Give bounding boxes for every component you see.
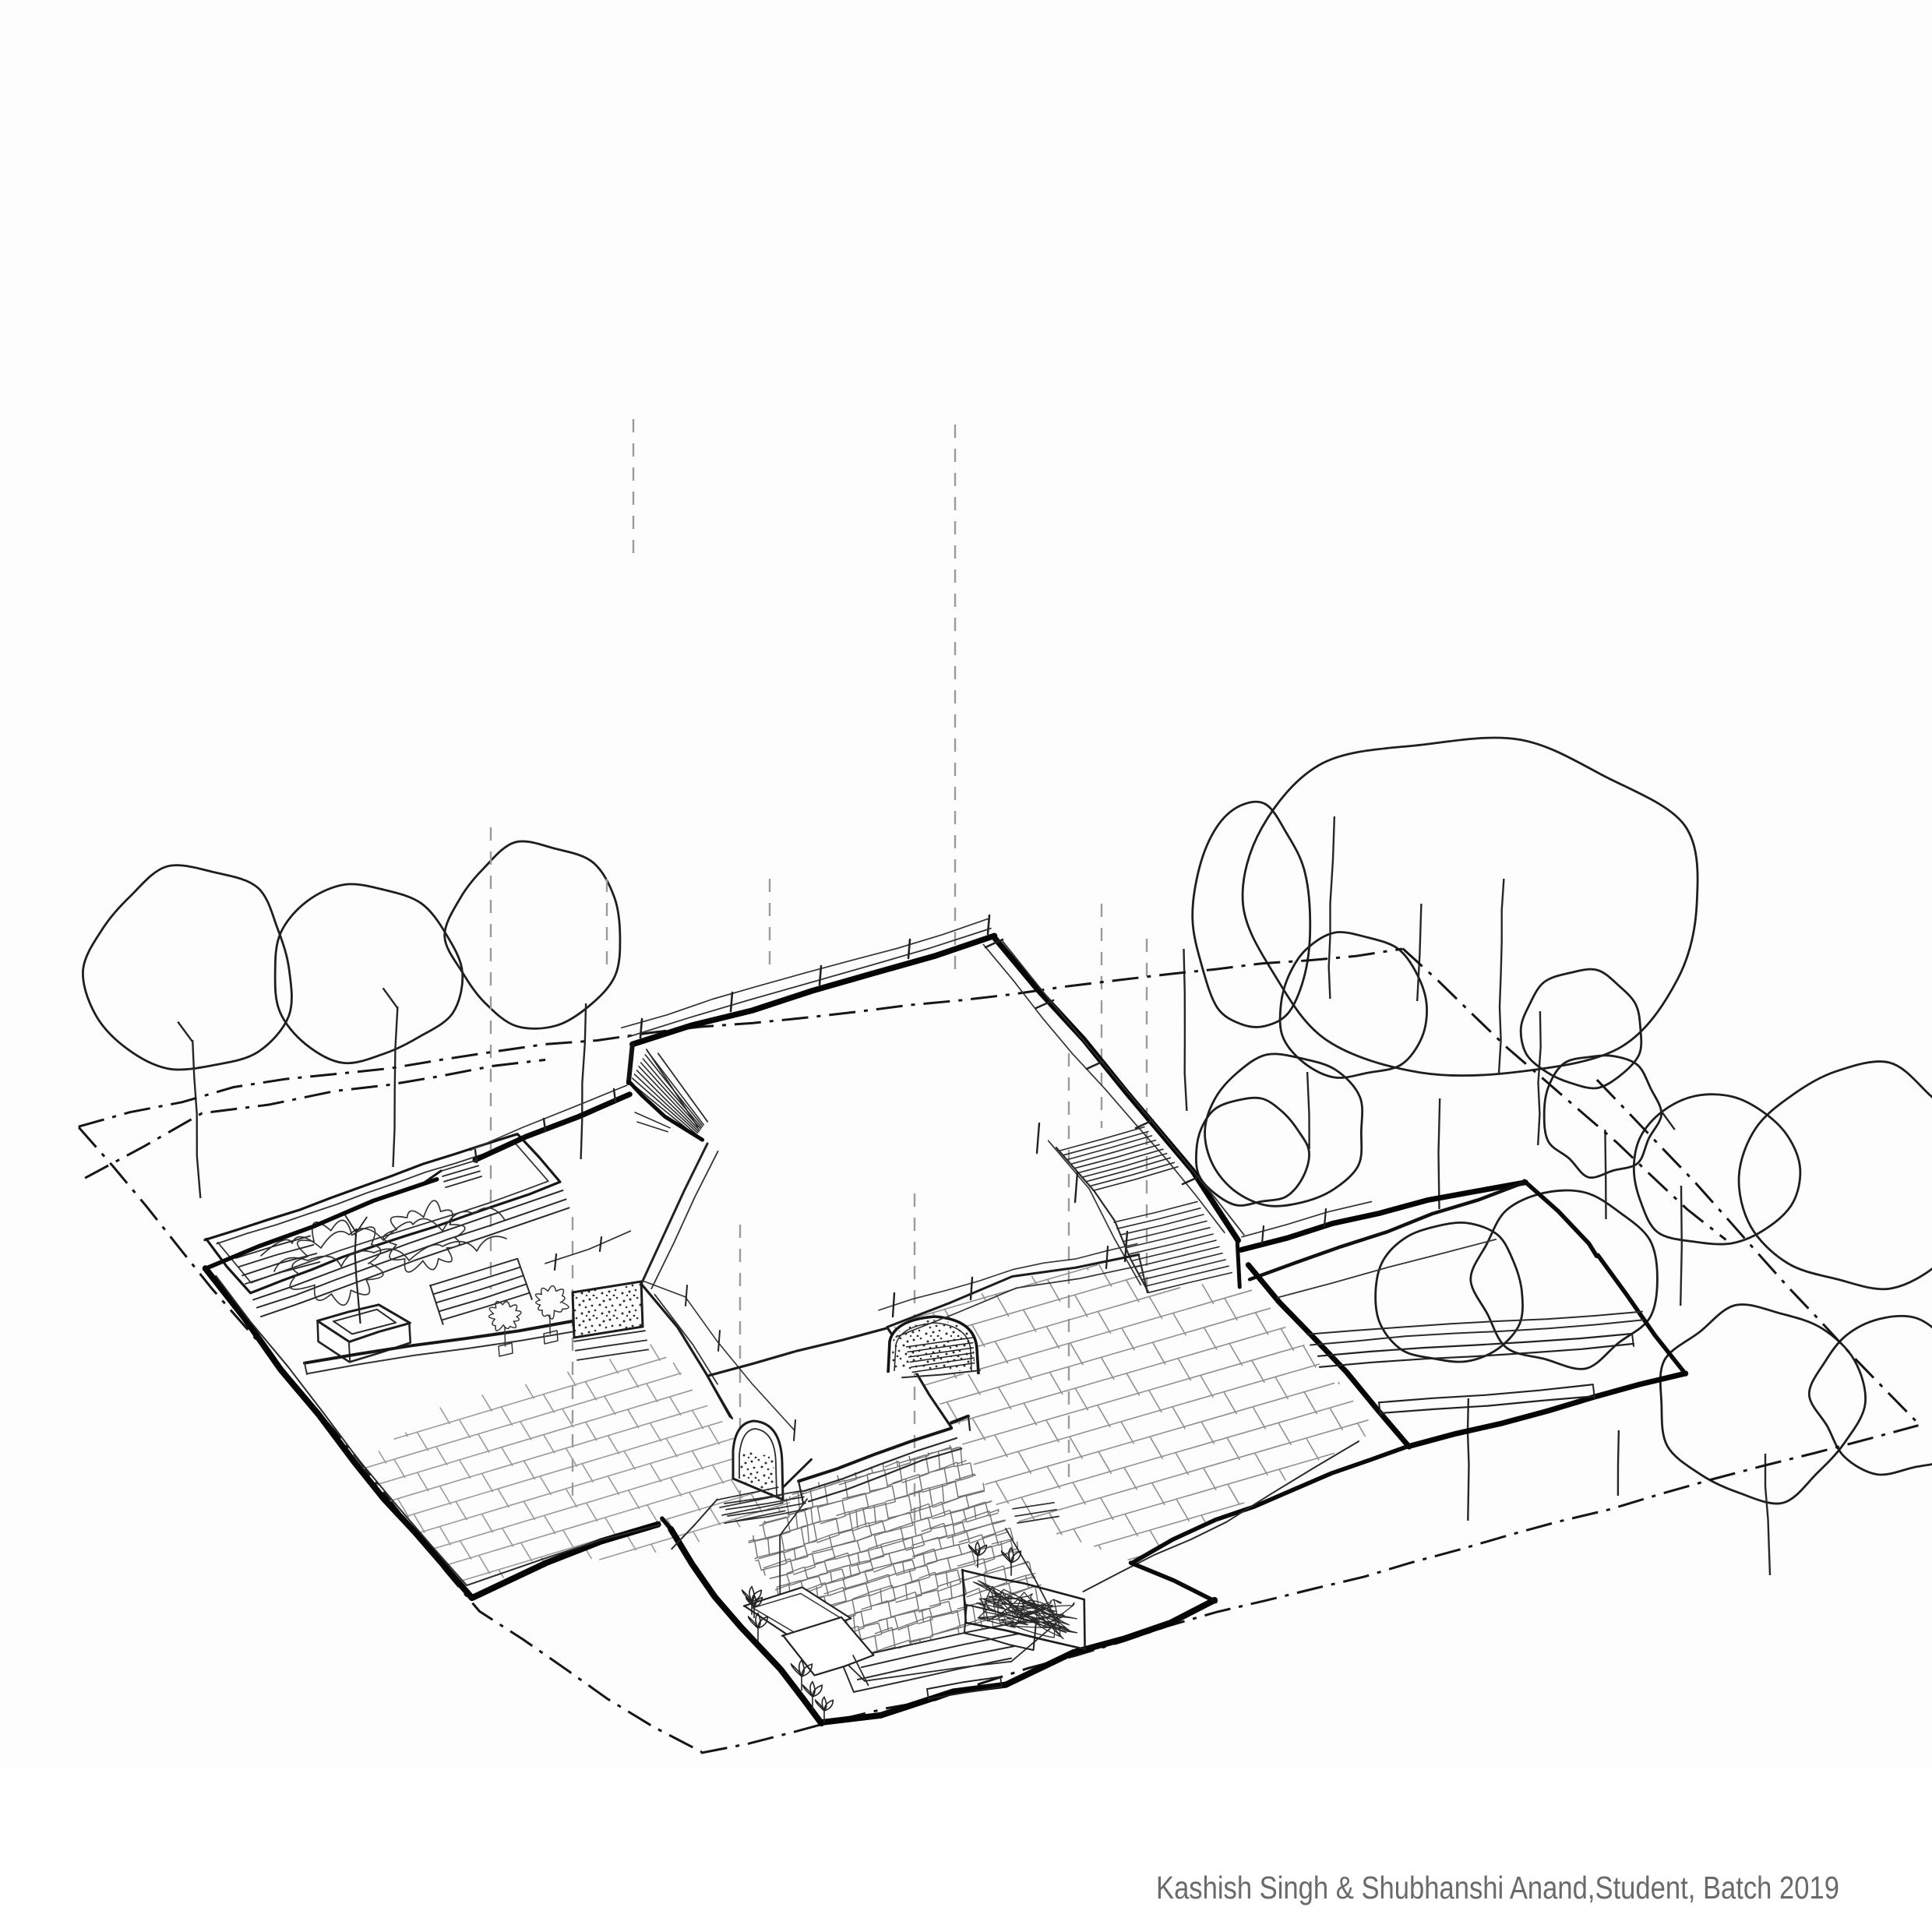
svg-text:Kashish Singh & Shubhanshi Ana: Kashish Singh & Shubhanshi Anand,Student… (1156, 1870, 1839, 1906)
